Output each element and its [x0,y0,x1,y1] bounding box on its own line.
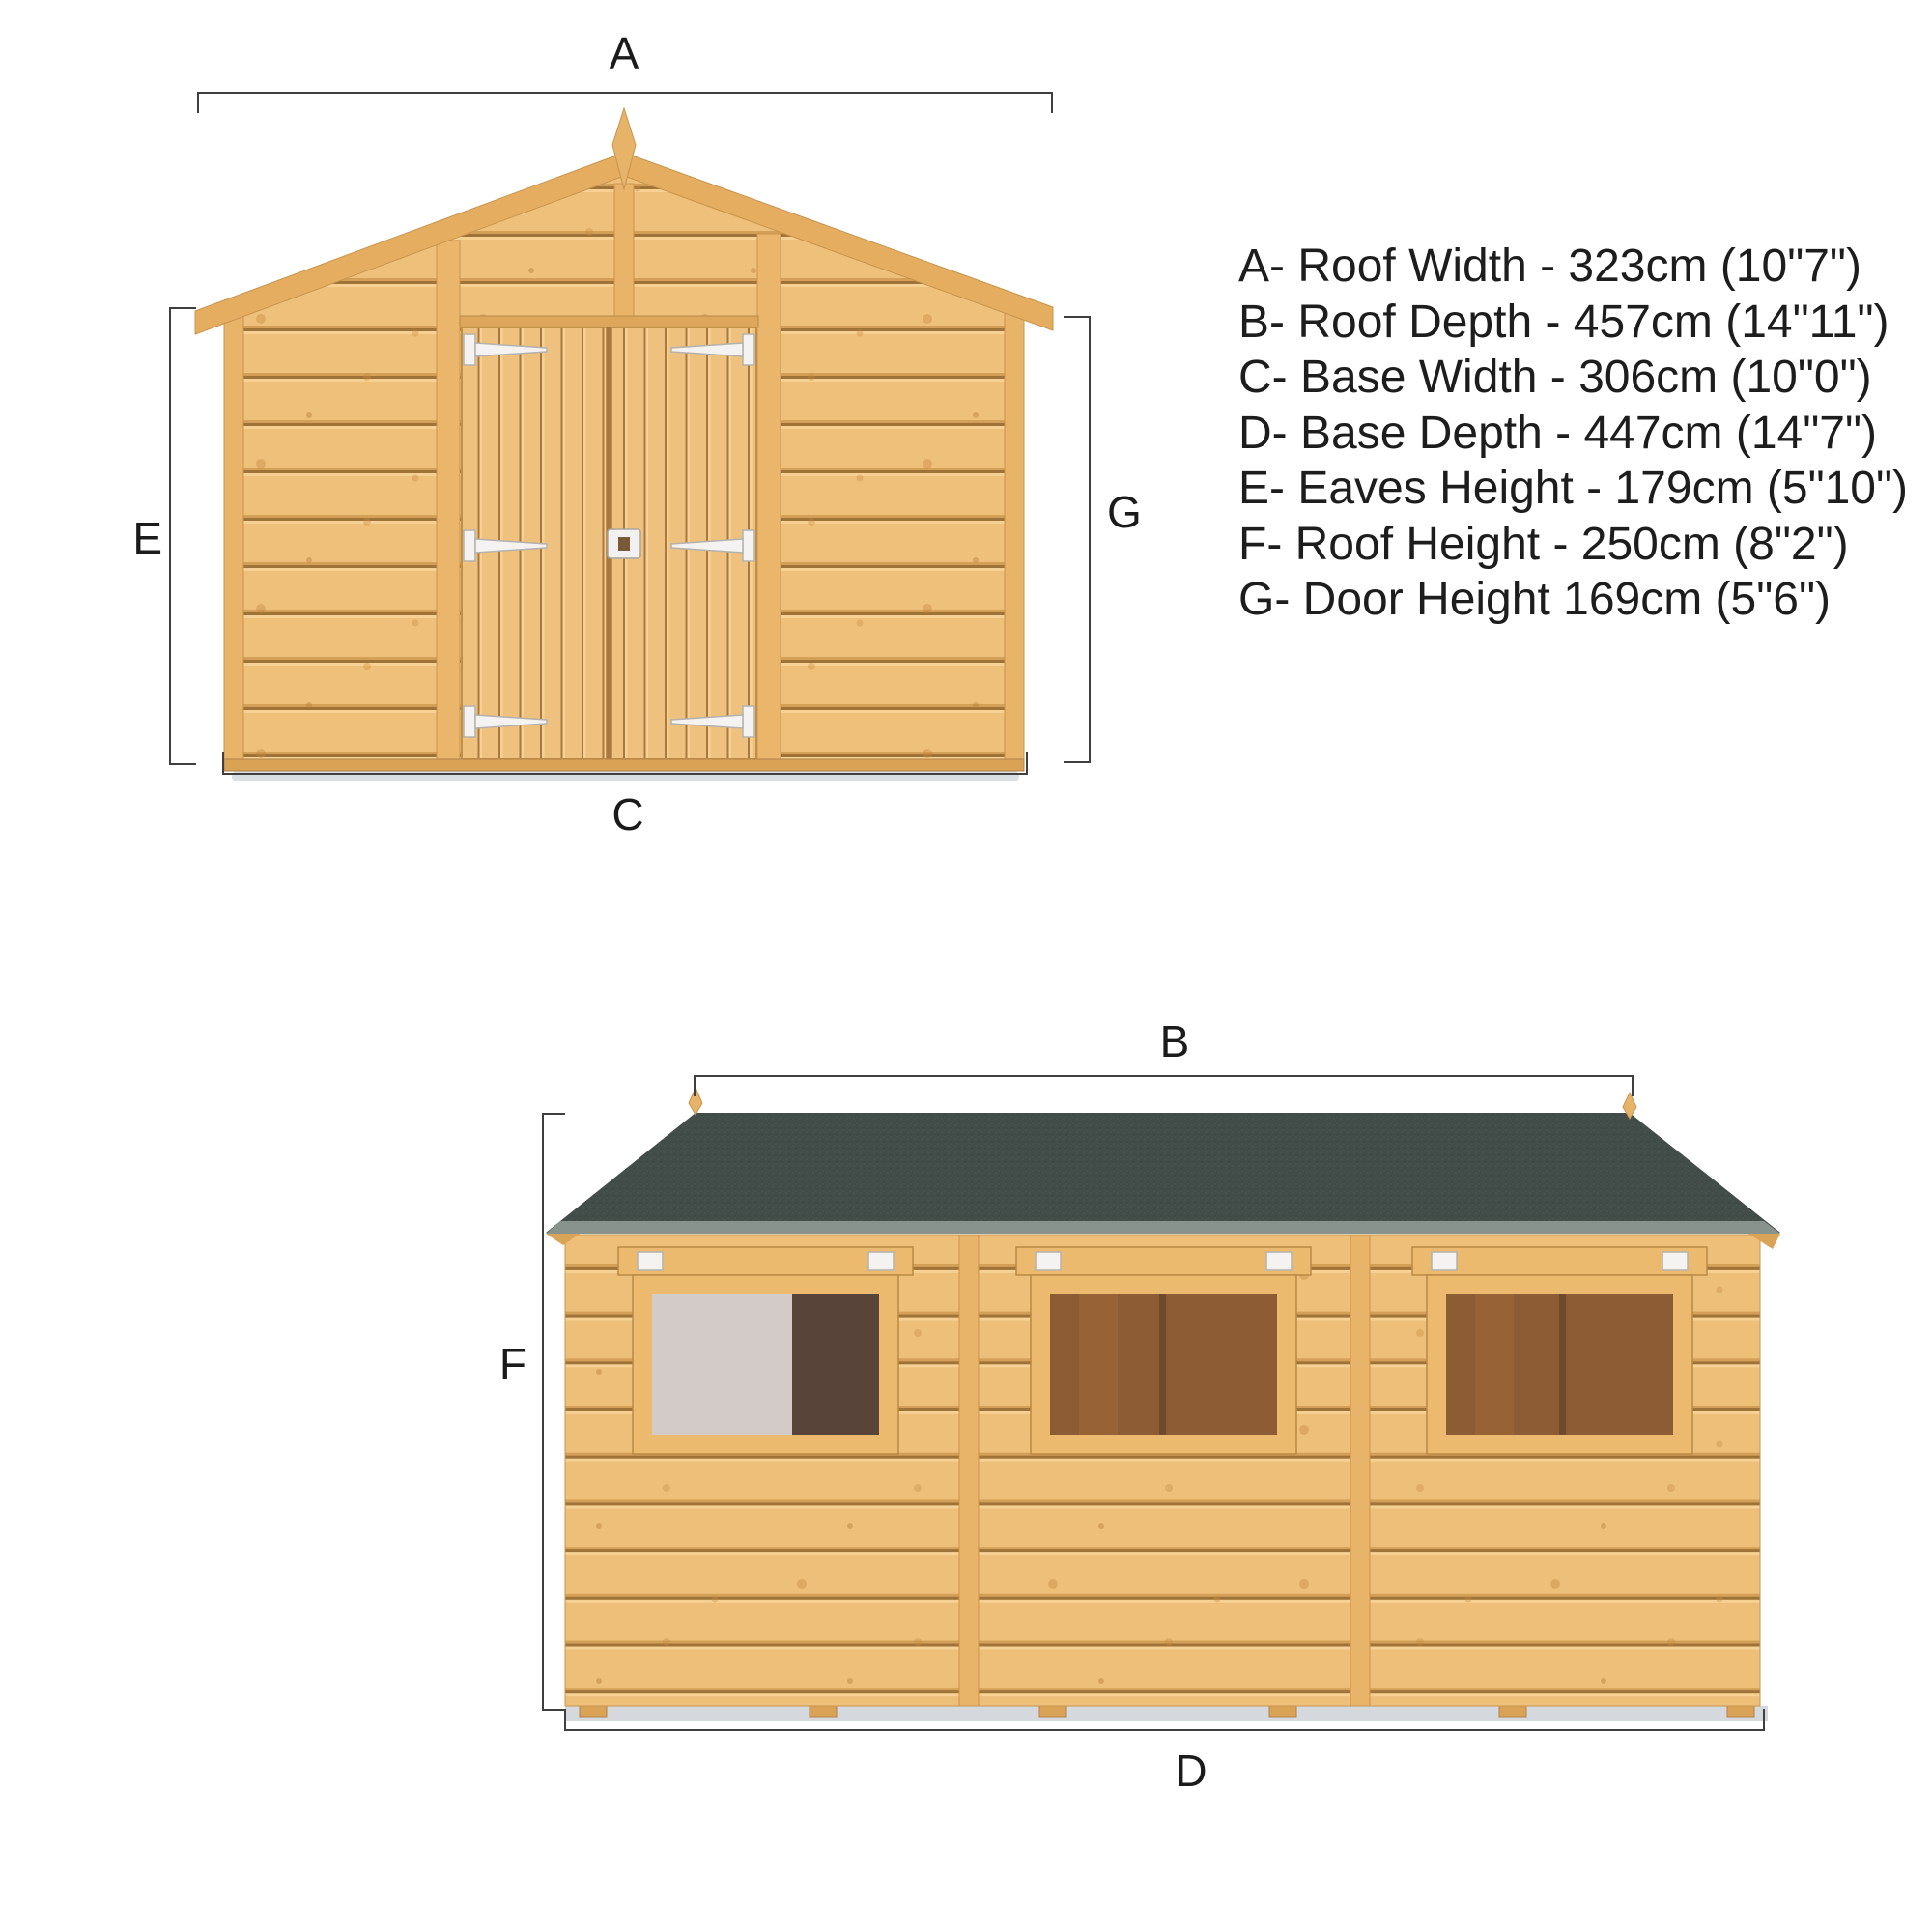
side-window-1 [618,1247,913,1454]
window-2-hinge-right [1266,1252,1292,1270]
window-3-reflection [1475,1294,1514,1435]
dim-bracket-base-width [222,752,1028,775]
front-elevation-illustration [145,97,1159,792]
gable-centre-batten [614,184,634,319]
dim-label-d: D [1175,1748,1207,1793]
spec-line-base-width: C- Base Width - 306cm (10"0") [1238,350,1908,406]
dim-bracket-roof-depth [694,1075,1634,1096]
side-divider-batten-1 [959,1235,979,1706]
window-3-hinge-right [1662,1252,1688,1270]
window-1-hinge-left [638,1252,663,1270]
spec-line-roof-height: F- Roof Height - 250cm (8"2") [1238,517,1908,573]
window-3-hinge-left [1432,1252,1457,1270]
window-2-hinge-left [1036,1252,1061,1270]
door-left-batten [437,241,460,761]
dim-label-a: A [610,31,639,75]
front-left-corner-batten [224,307,243,761]
dim-bracket-roof-width [197,92,1053,113]
door-right-batten [757,234,781,761]
dim-bracket-base-depth [564,1709,1765,1731]
side-roof-felt [546,1113,1780,1233]
dim-label-b: B [1160,1019,1190,1064]
side-roof-edge-strip [546,1221,1780,1234]
side-divider-batten-2 [1350,1235,1370,1706]
spec-line-door-height: G- Door Height 169cm (5"6") [1238,572,1908,628]
door-header [460,316,758,327]
dim-label-e: E [132,516,162,560]
side-window-2 [1016,1247,1311,1454]
front-right-corner-batten [1005,307,1024,761]
dim-bracket-eaves-height [169,307,196,765]
dimension-spec-list: A- Roof Width - 323cm (10"7") B- Roof De… [1238,239,1908,628]
window-3-mullion [1559,1294,1566,1435]
dim-label-c: C [611,792,643,837]
side-window-3 [1412,1247,1707,1454]
window-2-reflection [1079,1294,1118,1435]
dim-label-f: F [499,1342,526,1386]
side-elevation-illustration [415,1063,1884,1739]
window-1-pane-dark [792,1294,879,1435]
spec-line-roof-width: A- Roof Width - 323cm (10"7") [1238,239,1908,295]
dim-label-g: G [1107,490,1142,534]
dim-bracket-roof-height [542,1113,565,1711]
spec-line-base-depth: D- Base Depth - 447cm (14"7") [1238,406,1908,462]
shed-dimension-diagram: A C E G B D F A- Roof Width - 323cm (10"… [0,0,1932,1932]
dim-bracket-door-height [1064,316,1091,763]
window-1-hinge-right [868,1252,894,1270]
spec-line-eaves-height: E- Eaves Height - 179cm (5"10") [1238,461,1908,517]
spec-line-roof-depth: B- Roof Depth - 457cm (14"11") [1238,295,1908,351]
window-2-mullion [1159,1294,1166,1435]
window-1-pane-light [652,1294,792,1435]
door-latch-slot [618,537,630,551]
